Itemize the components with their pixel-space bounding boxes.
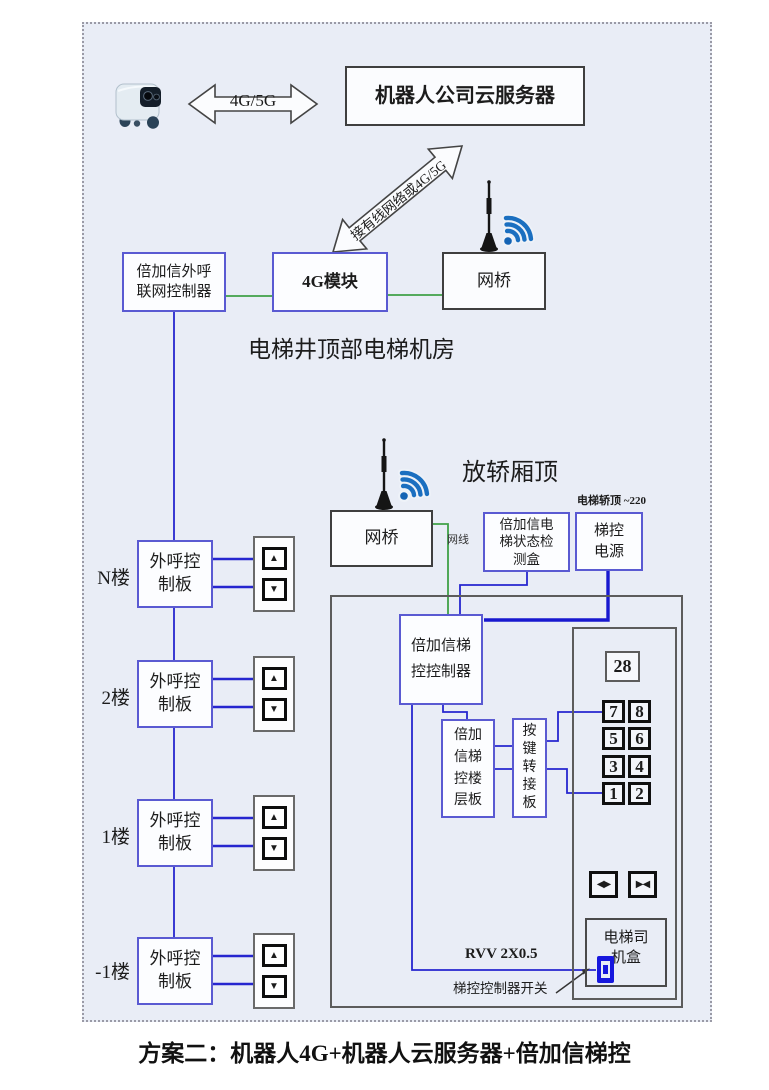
call-board-box: 外呼控 制板 <box>137 540 213 608</box>
bridge-box-car-top: 网桥 <box>330 510 433 567</box>
door-close-icon: ▶◀ <box>636 879 649 890</box>
cop-button-4: 4 <box>628 755 651 778</box>
cop-button-6: 6 <box>628 727 651 750</box>
bridge-box-machine-room: 网桥 <box>442 252 546 310</box>
down-button: ▼ <box>262 837 287 860</box>
module-4g-box: 4G模块 <box>272 252 388 312</box>
door-open-button: ◀▶ <box>589 871 618 898</box>
call-board-box: 外呼控 制板 <box>137 937 213 1005</box>
cop-button-5: 5 <box>602 727 625 750</box>
floor-label-1: 1楼 <box>80 822 130 849</box>
up-button: ▲ <box>262 806 287 829</box>
door-open-icon: ◀▶ <box>597 879 610 890</box>
up-button: ▲ <box>262 944 287 967</box>
power-note-label: 电梯轿顶 ~220 <box>577 492 646 508</box>
power-box: 梯控 电源 <box>575 512 643 571</box>
updown-panel: ▲ ▼ <box>253 795 295 871</box>
diagram-canvas: 4G/5G 机器人公司云服务器 接有线网络或4G/5G 倍加信外呼 联网控制器 … <box>0 0 769 1090</box>
rvv-label: RVV 2X0.5 <box>465 946 538 963</box>
switch-pointer-label: 梯控控制器开关 <box>453 977 548 997</box>
up-button: ▲ <box>262 667 287 690</box>
floor-label-2: 2楼 <box>80 683 130 710</box>
down-button: ▼ <box>262 698 287 721</box>
cop-button-2: 2 <box>628 782 651 805</box>
call-board-box: 外呼控 制板 <box>137 799 213 867</box>
status-detect-box: 倍加信电 梯状态检 测盒 <box>483 512 570 572</box>
floor-board-box: 倍加 信梯 控楼 层板 <box>441 719 495 818</box>
call-board-box: 外呼控 制板 <box>137 660 213 728</box>
key-adapter-box: 按 键 转 接 板 <box>512 718 547 818</box>
machine-room-caption: 电梯井顶部电梯机房 <box>248 330 455 364</box>
cop-button-8: 8 <box>628 700 651 723</box>
bjx-call-controller-box: 倍加信外呼 联网控制器 <box>122 252 226 312</box>
cloud-server-label: 机器人公司云服务器 <box>375 83 555 110</box>
cloud-server-box: 机器人公司云服务器 <box>345 66 585 126</box>
car-top-caption: 放轿厢顶 <box>462 452 558 487</box>
updown-panel: ▲ ▼ <box>253 656 295 732</box>
down-button: ▼ <box>262 578 287 601</box>
cop-button-1: 1 <box>602 782 625 805</box>
cable-label: 网线 <box>447 531 469 547</box>
door-close-button: ▶◀ <box>628 871 657 898</box>
floor-label-neg1: -1楼 <box>80 957 130 984</box>
floor-label-n: N楼 <box>80 563 130 590</box>
cop-button-3: 3 <box>602 755 625 778</box>
updown-panel: ▲ ▼ <box>253 933 295 1009</box>
down-button: ▼ <box>262 975 287 998</box>
updown-panel: ▲ ▼ <box>253 536 295 612</box>
link-arrow-label: 4G/5G <box>193 91 313 111</box>
scheme-caption: 方案二：机器人4G+机器人云服务器+倍加信梯控 <box>0 1034 769 1068</box>
switch-icon <box>597 956 614 983</box>
floor-display: 28 <box>605 651 640 682</box>
cop-button-7: 7 <box>602 700 625 723</box>
up-button: ▲ <box>262 547 287 570</box>
main-controller-box: 倍加信梯 控控制器 <box>399 614 483 705</box>
